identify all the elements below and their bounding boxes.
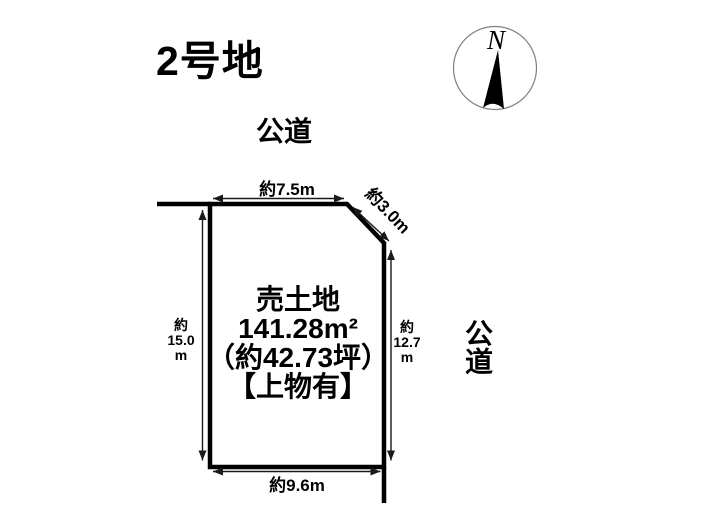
dimension-left-prefix: 約 [156,318,206,333]
dimension-left-value: 15.0 [156,333,206,348]
land-plot-diagram: 2号地 N 公道 公道 約7.5m 約3.0m 約 15.0 m 約 12.7 … [0,0,705,525]
dimension-label-left: 約 15.0 m [156,318,206,363]
sale-type-label: 売土地 [200,285,396,314]
road-label-top: 公道 [244,110,324,150]
dimension-left-unit: m [156,348,206,363]
compass-north-label: N [480,25,512,56]
diagram-linework [0,0,705,525]
plot-info-label: 売土地 141.28m² （約42.73坪） 【上物有】 [200,285,396,401]
page-title: 2号地 [156,27,264,87]
dimension-label-bottom: 約9.6m [256,471,338,496]
dimension-label-top: 約7.5m [247,175,327,200]
area-tsubo-label: （約42.73坪） [200,343,396,372]
building-note-label: 【上物有】 [200,372,396,401]
road-label-right: 公道 [463,319,491,375]
area-m2-label: 141.28m² [200,314,396,343]
